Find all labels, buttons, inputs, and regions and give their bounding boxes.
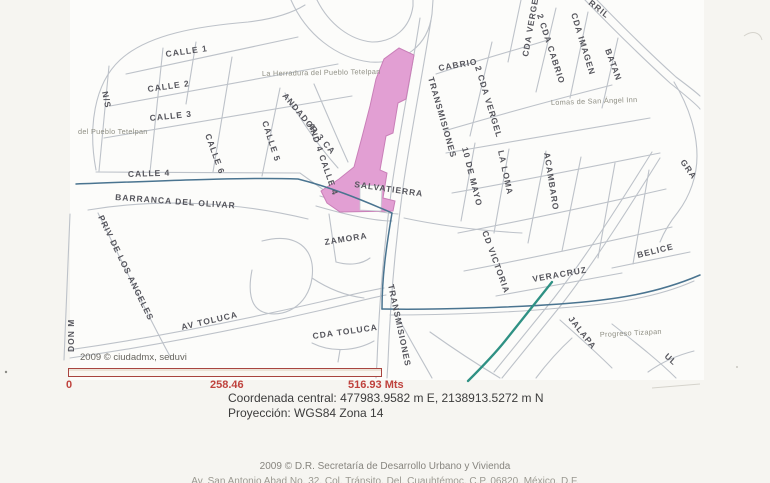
street-label-don-m-fragment: DON M bbox=[66, 319, 76, 352]
street-label-calle4: CALLE 4 bbox=[128, 168, 171, 179]
scale-bar-inner bbox=[69, 369, 381, 371]
scale-tick-0: 0 bbox=[66, 379, 72, 391]
scanned-map-page: CALLE 1 CALLE 2 CALLE 3 CALLE 4 N/S CALL… bbox=[0, 0, 770, 483]
scale-tick-mid: 258.46 bbox=[210, 379, 244, 391]
projection: Proyección: WGS84 Zona 14 bbox=[228, 406, 544, 421]
footer-copyright: 2009 © D.R. Secretaría de Desarrollo Urb… bbox=[0, 461, 770, 472]
map-metadata: Coordenada central: 477983.9582 m E, 213… bbox=[228, 391, 544, 421]
footer-address-clipped: Av. San Antonio Abad No. 32, Col. Tránsi… bbox=[0, 476, 770, 483]
map-canvas: CALLE 1 CALLE 2 CALLE 3 CALLE 4 N/S CALL… bbox=[0, 0, 770, 400]
scale-bar bbox=[68, 368, 382, 377]
scale-tick-max: 516.93 Mts bbox=[348, 379, 404, 391]
central-coordinate: Coordenada central: 477983.9582 m E, 213… bbox=[228, 391, 544, 406]
area-label-del-pueblo-tetelpan: del Pueblo Tetelpan bbox=[78, 127, 148, 136]
map-copyright: 2009 © ciudadmx, seduvi bbox=[80, 352, 187, 363]
